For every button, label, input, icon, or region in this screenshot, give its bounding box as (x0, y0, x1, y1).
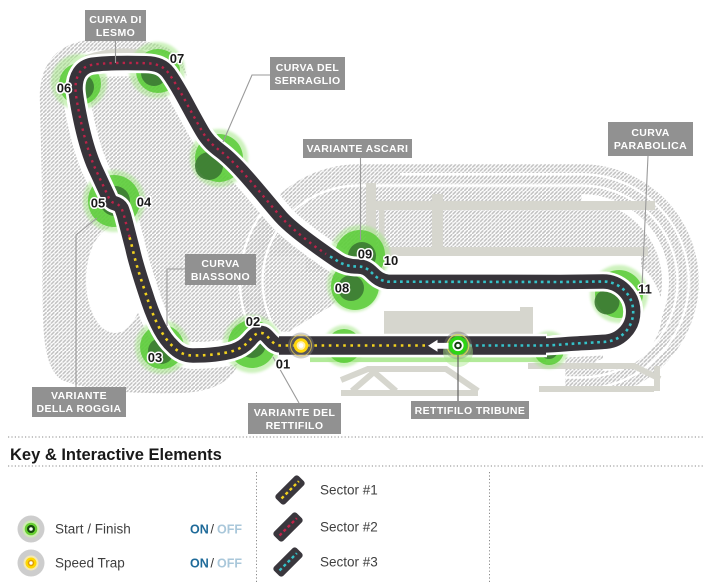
svg-text:06: 06 (57, 81, 71, 96)
svg-text:SERRAGLIO: SERRAGLIO (274, 75, 340, 87)
svg-text:OFF: OFF (217, 523, 242, 537)
svg-text:CURVA DI: CURVA DI (89, 14, 142, 26)
svg-text:CURVA DEL: CURVA DEL (276, 62, 340, 74)
svg-text:10: 10 (384, 253, 398, 268)
svg-text:LESMO: LESMO (96, 27, 135, 39)
svg-text:DELLA ROGGIA: DELLA ROGGIA (37, 403, 122, 415)
svg-text:CURVA: CURVA (631, 127, 669, 139)
svg-text:/: / (211, 523, 215, 537)
svg-text:Sector #1: Sector #1 (320, 483, 378, 498)
svg-text:Sector #3: Sector #3 (320, 555, 378, 570)
svg-text:07: 07 (170, 51, 184, 66)
svg-text:02: 02 (246, 314, 260, 329)
svg-text:PARABOLICA: PARABOLICA (614, 140, 687, 152)
svg-text:01: 01 (276, 357, 290, 372)
svg-text:RETTIFILO: RETTIFILO (266, 420, 324, 432)
svg-text:CURVA: CURVA (201, 258, 239, 270)
svg-text:Sector #2: Sector #2 (320, 520, 378, 535)
svg-text:VARIANTE DEL: VARIANTE DEL (254, 407, 336, 419)
svg-text:RETTIFILO TRIBUNE: RETTIFILO TRIBUNE (415, 405, 526, 417)
svg-text:VARIANTE: VARIANTE (51, 390, 107, 402)
svg-text:03: 03 (148, 350, 162, 365)
svg-text:08: 08 (335, 281, 349, 296)
svg-text:ON: ON (190, 523, 209, 537)
svg-text:Key & Interactive Elements: Key & Interactive Elements (10, 446, 222, 464)
svg-text:Speed Trap: Speed Trap (55, 556, 125, 571)
svg-text:09: 09 (358, 247, 372, 262)
svg-text:VARIANTE ASCARI: VARIANTE ASCARI (307, 143, 409, 155)
svg-text:05: 05 (91, 196, 105, 211)
svg-text:OFF: OFF (217, 557, 242, 571)
svg-text:04: 04 (137, 195, 152, 210)
svg-text:ON: ON (190, 557, 209, 571)
svg-text:BIASSONO: BIASSONO (191, 271, 250, 283)
svg-text:11: 11 (638, 282, 652, 297)
svg-text:/: / (211, 557, 215, 571)
svg-text:Start / Finish: Start / Finish (55, 522, 131, 537)
